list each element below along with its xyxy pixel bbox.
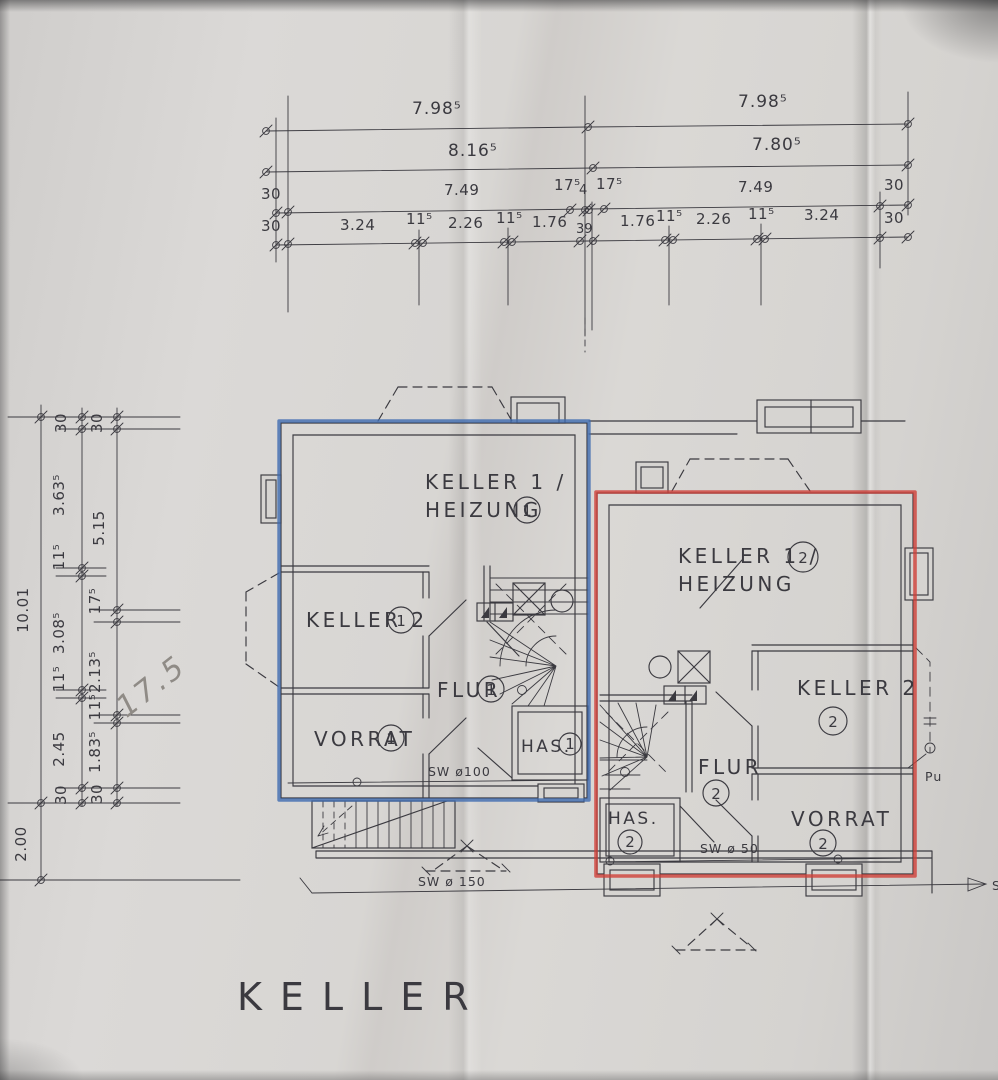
room-label: HAS. [521, 737, 572, 757]
dim-label: 30 [261, 185, 281, 203]
dim-label: 3.24 [804, 206, 839, 224]
dim-label: 2.13⁵ [86, 651, 104, 693]
dim-label: 3.24 [340, 216, 375, 234]
unit-number: 2 [625, 833, 635, 851]
equipment-right-unit [649, 651, 710, 704]
dim-label: 11⁵ [406, 210, 433, 228]
dim-label: 7.80⁵ [752, 135, 802, 155]
top-dimension-block: 7.98⁵ 7.98⁵ 8.16⁵ 7.80⁵ 30 7.49 17⁵ 4 17… [260, 92, 914, 352]
room-label: HAS. [608, 809, 659, 829]
dim-label: 30 [52, 413, 70, 433]
dim-label: 2.26 [696, 210, 731, 228]
dim-label: 7.49 [738, 178, 773, 196]
dim-label: 4 [579, 183, 587, 198]
scanned-floorplan-photo: 7.98⁵ 7.98⁵ 8.16⁵ 7.80⁵ 30 7.49 17⁵ 4 17… [0, 0, 998, 1080]
outfall-label: S [992, 878, 998, 893]
dim-label: 30 [261, 217, 281, 235]
room-labels-left-unit: KELLER 1 / HEIZUNG 1 KELLER 2 1 FLUR 1 V… [306, 470, 581, 757]
pump-label: Pu [925, 769, 942, 784]
room-label: FLUR [698, 755, 762, 779]
dim-label: 11⁵ [656, 207, 683, 225]
dim-label: 2.00 [12, 826, 30, 861]
dim-label: 17⁵ [86, 588, 104, 615]
dim-label: 30 [884, 209, 904, 227]
dim-label: 17⁵ [596, 175, 623, 193]
unit-number: 1 [386, 730, 396, 748]
dim-label: 11⁵ [748, 205, 775, 223]
dim-label: 30 [884, 176, 904, 194]
dim-label: 7.98⁵ [412, 99, 462, 119]
handwritten-pencil-note: 17.5 [110, 649, 194, 725]
exterior-stair [312, 801, 455, 848]
unit-number: 2 [818, 835, 828, 853]
dim-label: 11⁵ [50, 544, 68, 571]
room-label: HEIZUNG [678, 572, 795, 596]
room-label: KELLER 2 [306, 608, 428, 632]
dim-label: 3.63⁵ [50, 474, 68, 516]
dim-label: 2.45 [50, 731, 68, 766]
room-label: KELLER 2 [797, 676, 919, 700]
dim-label: 17⁵ [554, 176, 581, 194]
dim-label: 1.76 [532, 213, 567, 231]
pipe-label-sw100: SW ø100 [428, 764, 491, 779]
room-label: KELLER 1 / [425, 470, 567, 494]
unit-number: 1 [522, 502, 532, 520]
dim-label: 1.76 [620, 212, 655, 230]
dim-label: 39 [576, 222, 593, 237]
dim-label: 8.16⁵ [448, 141, 498, 161]
room-label: VORRAT [791, 807, 892, 831]
stair-right-unit [600, 703, 668, 790]
dim-label: 11⁵ [50, 666, 68, 693]
dim-label: 1.83⁵ [86, 731, 104, 773]
unit-number: 2 [711, 785, 721, 803]
dim-label: 2.26 [448, 214, 483, 232]
unit-number: 1 [486, 681, 496, 699]
dim-label: 11⁵ [496, 209, 523, 227]
boiler-icon [551, 590, 573, 612]
pump-symbol [908, 648, 936, 768]
unit-number: 2 [828, 713, 838, 731]
unit-number: 2 [798, 549, 808, 567]
dim-label: 11⁵ [86, 694, 104, 721]
dim-label: 10.01 [14, 587, 32, 632]
dim-label: 7.49 [444, 181, 479, 199]
stair-left-unit [490, 578, 588, 706]
dim-label: 3.08⁵ [50, 612, 68, 654]
dim-label: 5.15 [90, 510, 108, 545]
pipe-label-sw50: SW ø 50 [700, 841, 759, 856]
unit-number: 1 [565, 735, 575, 753]
dim-label: 7.98⁵ [738, 92, 788, 112]
pipe-label-sw150: SW ø 150 [418, 874, 486, 889]
dim-label: 30 [88, 784, 106, 804]
floorplan-drawing: 7.98⁵ 7.98⁵ 8.16⁵ 7.80⁵ 30 7.49 17⁵ 4 17… [0, 0, 998, 1080]
room-labels-right-unit: KELLER 1 / HEIZUNG 2 KELLER 2 2 FLUR 2 V… [608, 542, 919, 856]
unit-number: 1 [396, 612, 406, 630]
survey-triangle-bottom-right [672, 913, 756, 954]
left-dimension-block: 10.01 2.00 30 3.63⁵ 11⁵ 3.08⁵ 11⁵ 2.45 3… [0, 405, 240, 886]
sheet-title: KELLER [237, 975, 487, 1019]
boiler-icon [649, 656, 671, 678]
dim-label: 30 [52, 785, 70, 805]
dim-label: 30 [88, 413, 106, 433]
